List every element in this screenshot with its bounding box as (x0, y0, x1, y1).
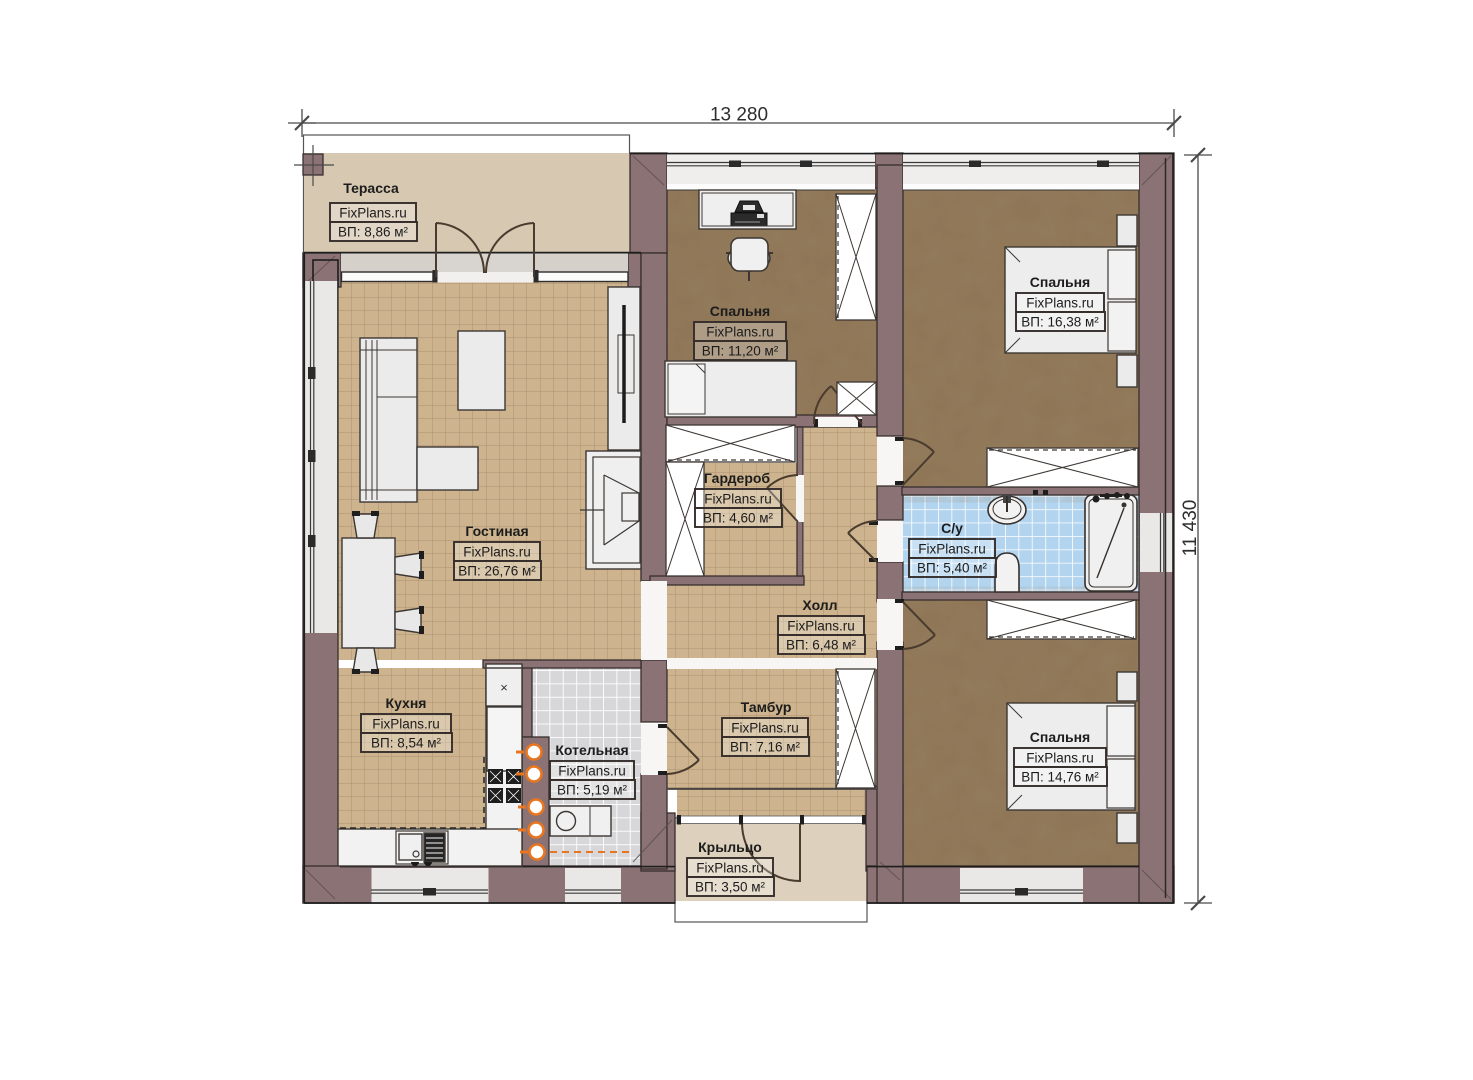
svg-text:ВП: 4,60 м²: ВП: 4,60 м² (703, 511, 774, 526)
svg-text:ВП: 5,40 м²: ВП: 5,40 м² (917, 561, 988, 576)
svg-text:FixPlans.ru: FixPlans.ru (731, 721, 799, 736)
svg-text:ВП: 8,86 м²: ВП: 8,86 м² (338, 225, 409, 240)
svg-text:11 430: 11 430 (1180, 500, 1201, 557)
svg-text:ВП: 14,76 м²: ВП: 14,76 м² (1021, 770, 1099, 785)
svg-text:Котельная: Котельная (555, 742, 628, 758)
svg-text:Спальня: Спальня (1030, 729, 1090, 745)
svg-text:FixPlans.ru: FixPlans.ru (787, 619, 855, 634)
svg-text:FixPlans.ru: FixPlans.ru (1026, 296, 1094, 311)
svg-text:FixPlans.ru: FixPlans.ru (696, 861, 764, 876)
svg-text:FixPlans.ru: FixPlans.ru (918, 542, 986, 557)
svg-text:Терасса: Терасса (343, 180, 399, 196)
svg-text:ВП: 26,76 м²: ВП: 26,76 м² (458, 564, 536, 579)
svg-text:ВП: 16,38 м²: ВП: 16,38 м² (1021, 315, 1099, 330)
svg-text:Гостиная: Гостиная (465, 523, 528, 539)
svg-text:×: × (500, 680, 508, 695)
svg-text:Тамбур: Тамбур (741, 699, 792, 715)
svg-text:FixPlans.ru: FixPlans.ru (704, 492, 772, 507)
svg-text:Спальня: Спальня (1030, 274, 1090, 290)
svg-text:FixPlans.ru: FixPlans.ru (706, 325, 774, 340)
svg-text:FixPlans.ru: FixPlans.ru (558, 764, 626, 779)
svg-text:Спальня: Спальня (710, 303, 770, 319)
svg-text:FixPlans.ru: FixPlans.ru (1026, 751, 1094, 766)
svg-text:Кухня: Кухня (386, 695, 427, 711)
svg-text:FixPlans.ru: FixPlans.ru (372, 717, 440, 732)
svg-text:FixPlans.ru: FixPlans.ru (463, 545, 531, 560)
svg-text:FixPlans.ru: FixPlans.ru (339, 206, 407, 221)
svg-text:Гардероб: Гардероб (704, 470, 771, 486)
svg-text:ВП: 5,19 м²: ВП: 5,19 м² (557, 783, 628, 798)
svg-text:Холл: Холл (802, 597, 837, 613)
svg-text:ВП: 3,50 м²: ВП: 3,50 м² (695, 880, 766, 895)
svg-text:ВП: 11,20 м²: ВП: 11,20 м² (702, 344, 779, 359)
svg-text:Крыльцо: Крыльцо (698, 839, 762, 855)
svg-text:ВП: 8,54 м²: ВП: 8,54 м² (371, 736, 442, 751)
svg-text:С/у: С/у (941, 520, 963, 536)
svg-text:13 280: 13 280 (710, 105, 768, 126)
svg-text:ВП: 6,48 м²: ВП: 6,48 м² (786, 638, 857, 653)
svg-text:ВП: 7,16 м²: ВП: 7,16 м² (730, 740, 801, 755)
